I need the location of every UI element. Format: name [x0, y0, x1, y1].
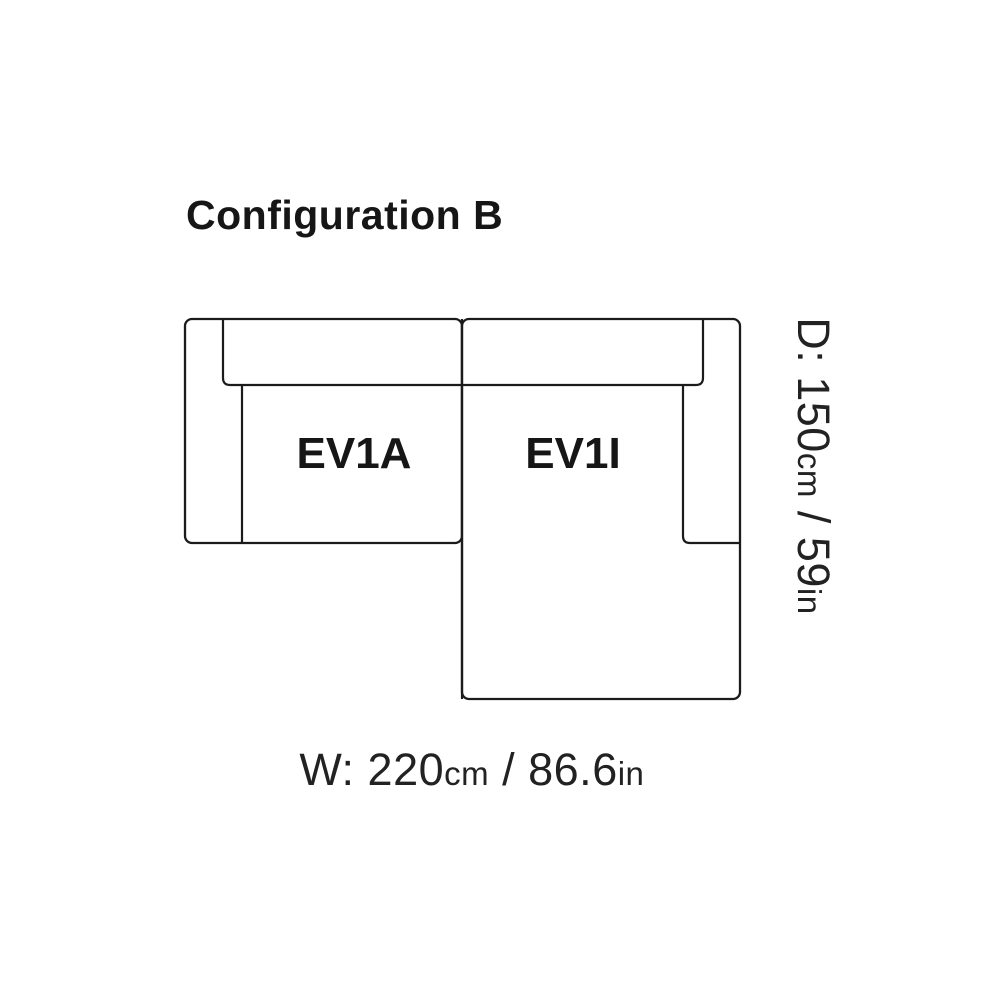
configuration-diagram-page: Configuration B EV1A EV1I W: 220cm / 86.…: [0, 0, 998, 998]
depth-metric-unit: cm: [791, 453, 828, 498]
depth-value: D: 150: [788, 317, 839, 453]
module-ev1i-outline: [462, 319, 740, 699]
depth-imperial-value: / 59: [788, 498, 839, 588]
depth-dimension-label: D: 150cm / 59in: [769, 297, 857, 614]
module-label-ev1i: EV1I: [525, 429, 620, 478]
width-metric-unit: cm: [444, 755, 489, 792]
module-label-ev1a: EV1A: [297, 429, 412, 478]
width-value: W: 220: [299, 744, 444, 795]
depth-imperial-unit: in: [791, 588, 828, 615]
width-imperial-unit: in: [618, 755, 645, 792]
width-imperial-value: / 86.6: [489, 744, 618, 795]
width-dimension-label: W: 220cm / 86.6in: [280, 726, 645, 814]
